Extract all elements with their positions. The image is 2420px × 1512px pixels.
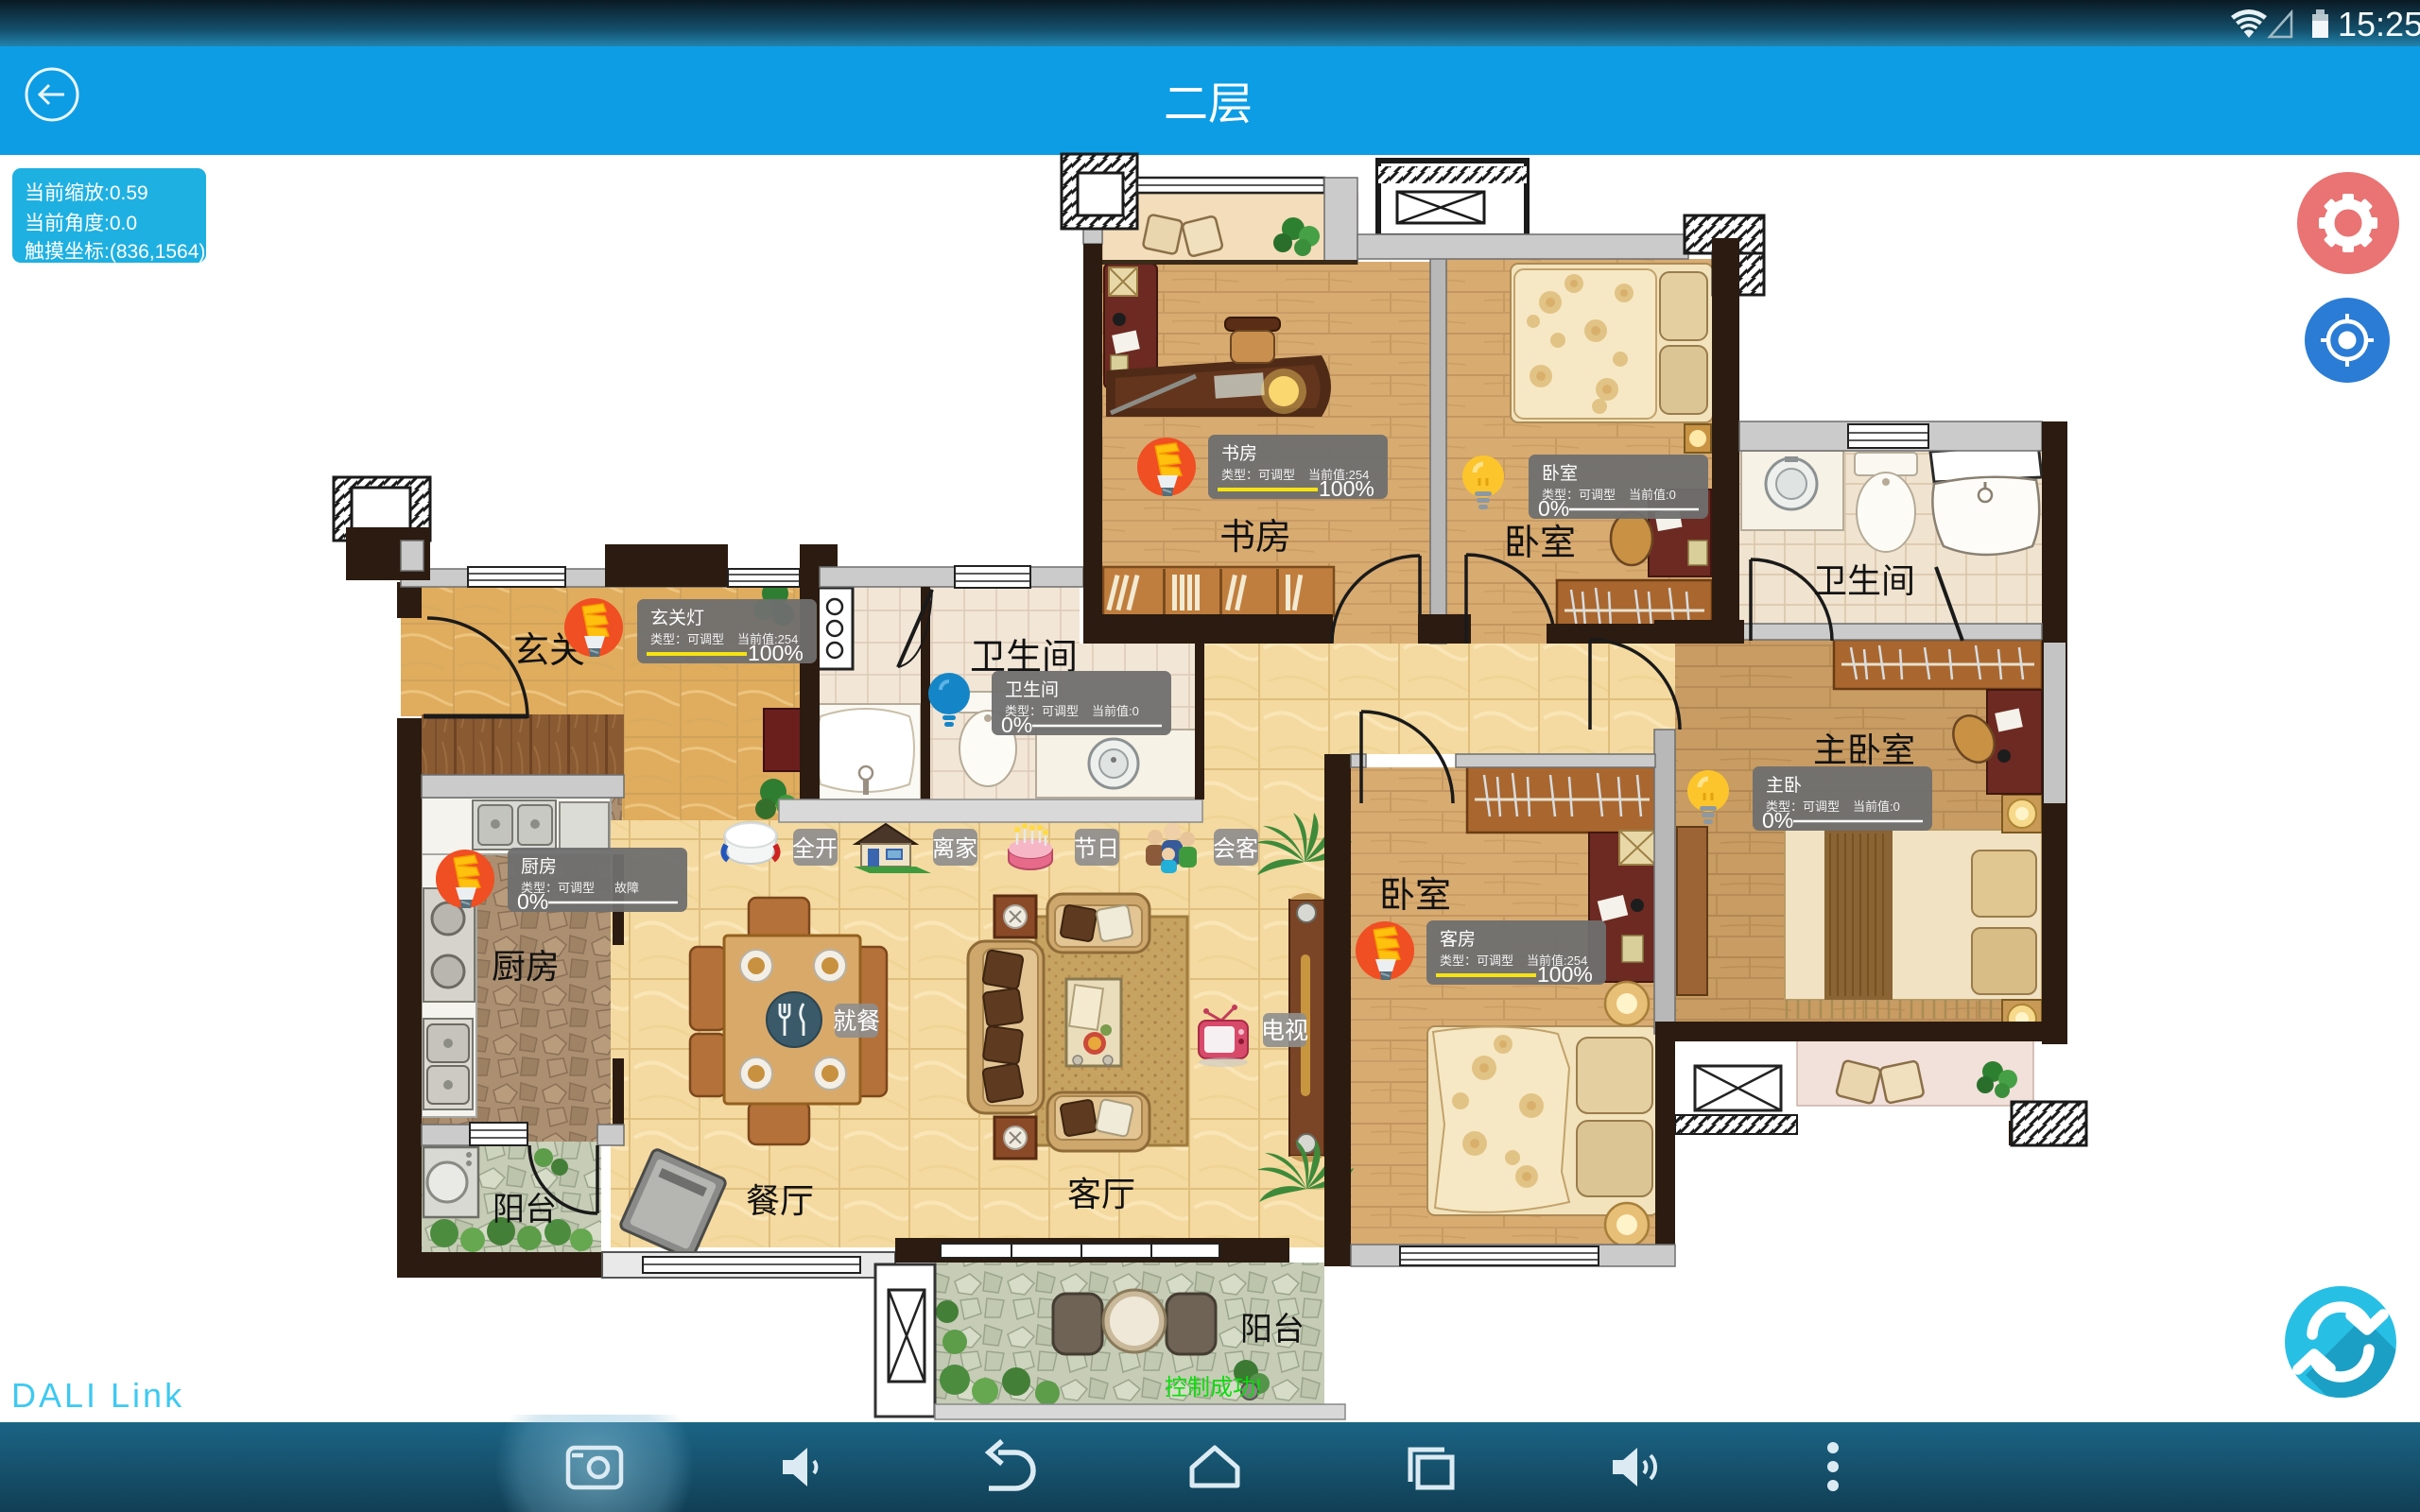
svg-text:控制成功!: 控制成功! [1165,1375,1262,1400]
svg-text:0%: 0% [1538,496,1569,521]
svg-text:当前值:0: 当前值:0 [1629,488,1676,502]
svg-text:当前值:0: 当前值:0 [1092,704,1139,718]
svg-text:100%: 100% [748,641,804,665]
svg-text:故障: 故障 [614,881,639,895]
svg-text:全开: 全开 [792,836,838,862]
svg-text:100%: 100% [1319,476,1374,501]
svg-text:书房: 书房 [1221,443,1257,464]
svg-text:阳台: 阳台 [1240,1312,1305,1348]
svg-text:客厅: 客厅 [1067,1175,1135,1213]
svg-text:触摸坐标:(836,1564): 触摸坐标:(836,1564) [25,241,205,263]
svg-text:会客: 会客 [1213,836,1258,862]
svg-text:卧室: 卧室 [1542,463,1578,484]
svg-text:餐厅: 餐厅 [746,1181,814,1220]
svg-text:类型：可调型: 类型：可调型 [650,632,724,646]
svg-text:类型：可调型: 类型：可调型 [1440,954,1513,968]
svg-text:阳台: 阳台 [493,1192,557,1228]
svg-text:100%: 100% [1537,962,1593,987]
svg-text:电视: 电视 [1261,1018,1308,1044]
svg-text:书房: 书房 [1219,518,1291,558]
svg-text:二层: 二层 [1164,78,1253,129]
svg-text:厨房: 厨房 [492,947,560,986]
svg-text:厨房: 厨房 [521,856,557,877]
svg-text:主卧: 主卧 [1766,775,1802,796]
svg-text:客房: 客房 [1440,929,1476,950]
svg-text:离家: 离家 [932,836,977,862]
svg-text:0%: 0% [1001,713,1032,737]
svg-text:卫生间: 卫生间 [1005,679,1059,700]
svg-text:主卧室: 主卧室 [1813,730,1915,769]
svg-text:卧室: 卧室 [1504,524,1576,563]
svg-text:类型：可调型: 类型：可调型 [1221,468,1295,482]
svg-text:当前值:0: 当前值:0 [1853,799,1900,814]
svg-text:15:25: 15:25 [2338,5,2420,43]
svg-text:玄关灯: 玄关灯 [650,608,704,628]
svg-text:DALI Link: DALI Link [11,1376,184,1415]
svg-text:0%: 0% [517,889,548,914]
svg-text:当前缩放:0.59: 当前缩放:0.59 [25,182,148,204]
svg-text:节日: 节日 [1074,836,1119,862]
svg-text:卧室: 卧室 [1379,876,1451,916]
svg-text:0%: 0% [1762,808,1793,833]
svg-text:卫生间: 卫生间 [1813,561,1915,600]
svg-text:就餐: 就餐 [833,1008,880,1035]
svg-text:当前角度:0.0: 当前角度:0.0 [25,213,137,234]
